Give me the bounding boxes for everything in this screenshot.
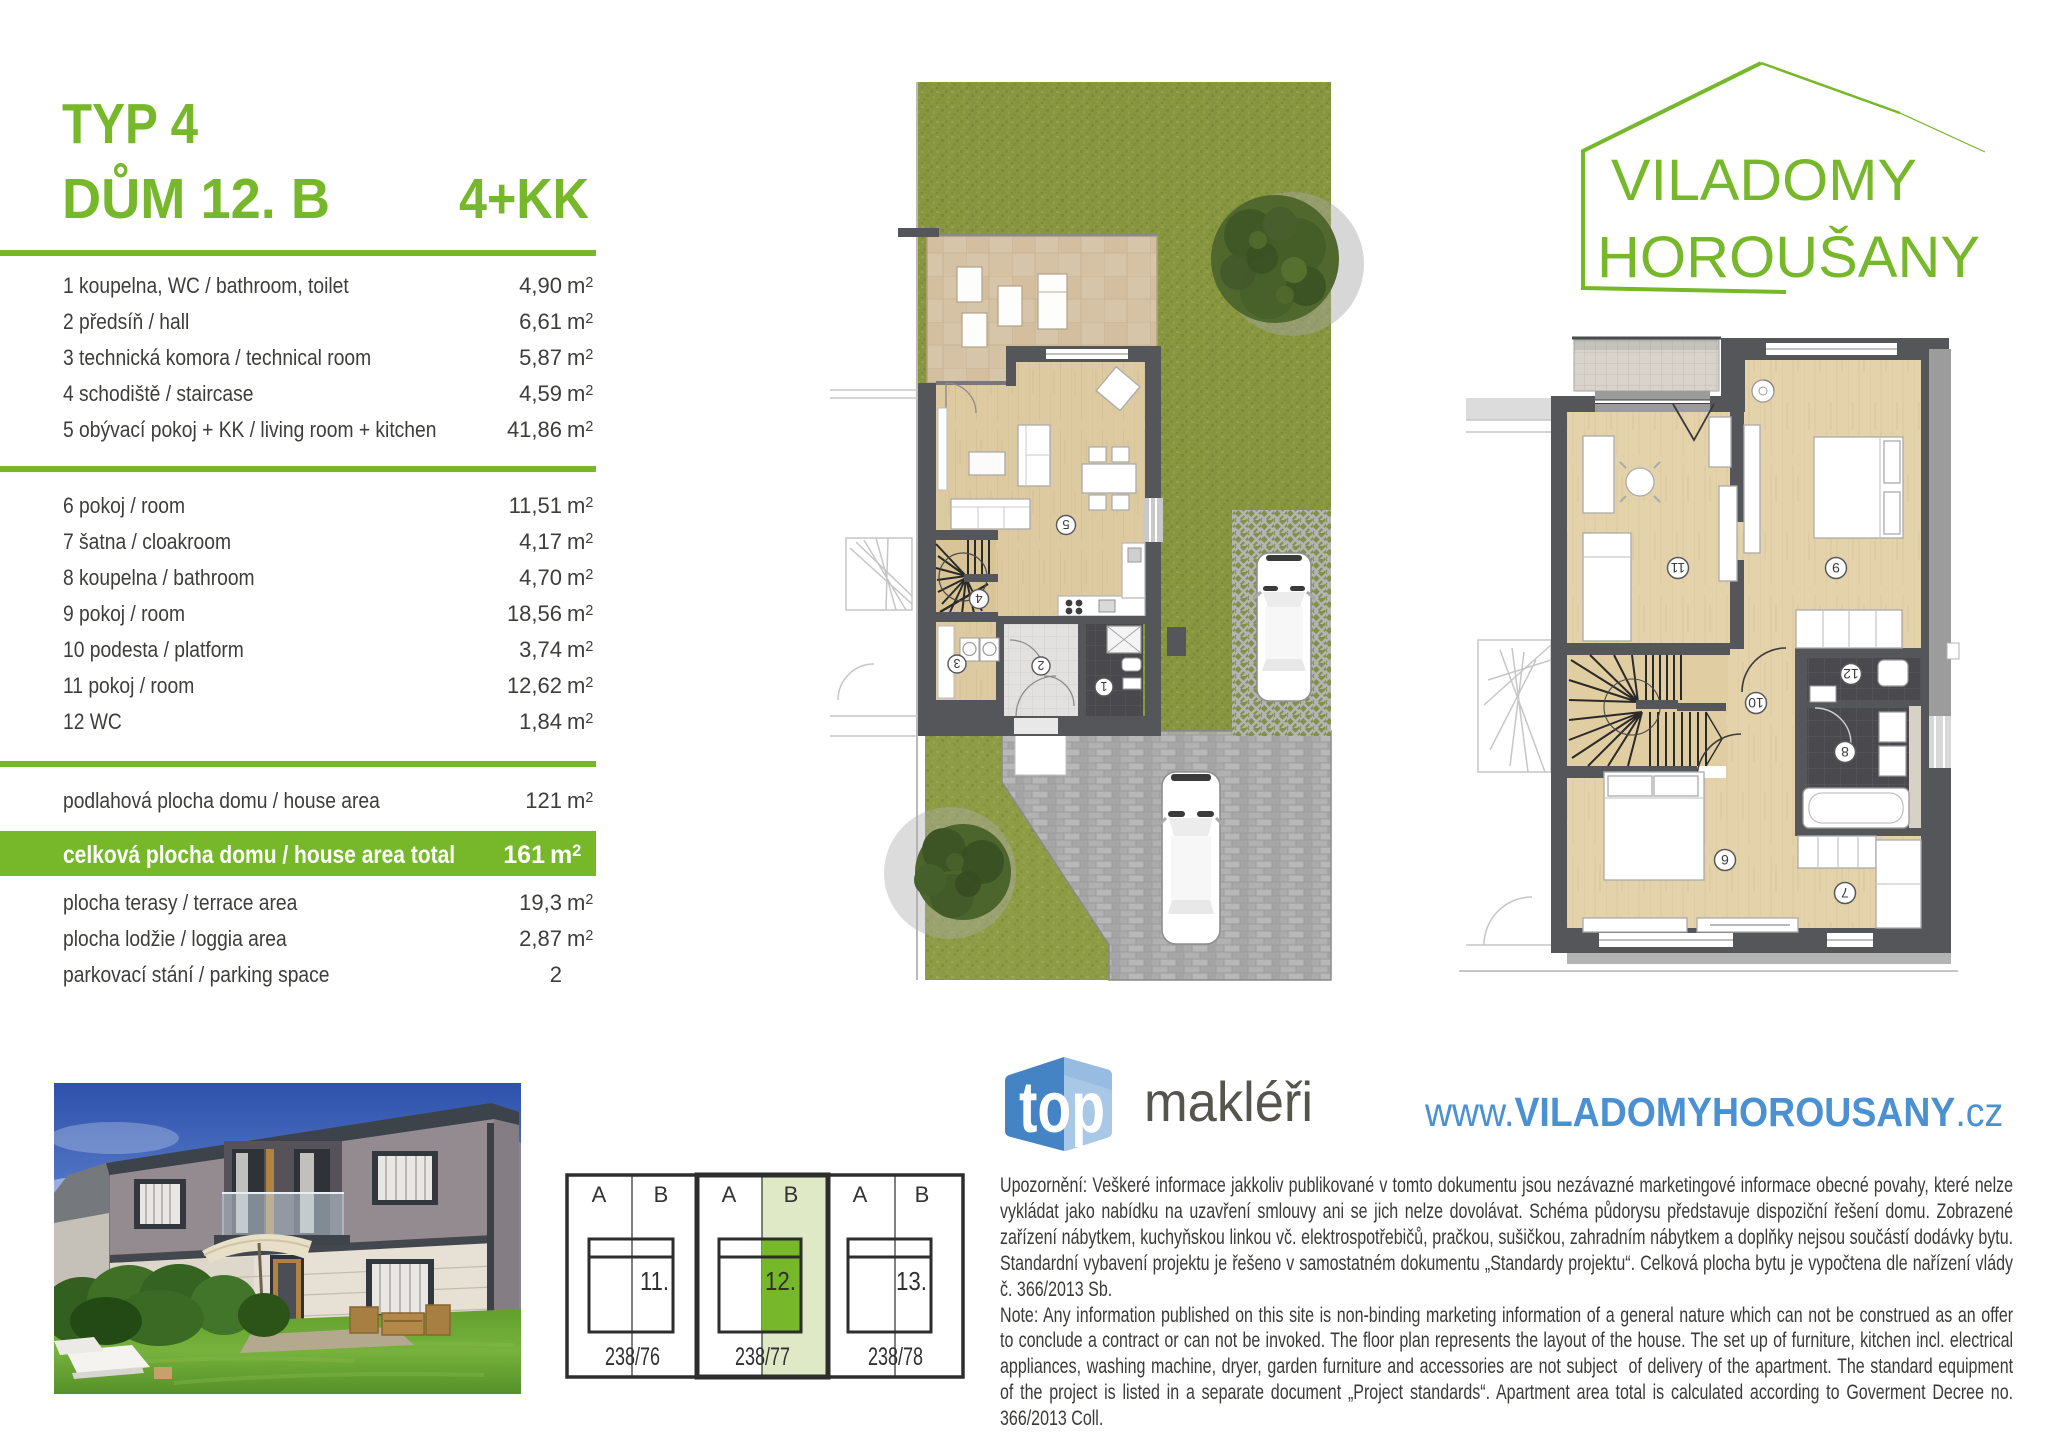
- svg-text:2: 2: [1037, 658, 1044, 672]
- svg-text:B: B: [915, 1182, 930, 1207]
- svg-text:1: 1: [1100, 679, 1107, 693]
- svg-text:6: 6: [1721, 852, 1729, 868]
- svg-text:3: 3: [953, 656, 960, 670]
- svg-text:top: top: [1019, 1068, 1105, 1148]
- svg-text:10: 10: [1748, 695, 1764, 711]
- svg-text:238/77: 238/77: [735, 1343, 790, 1371]
- svg-text:A: A: [853, 1182, 868, 1207]
- svg-text:DŮM 12. B: DŮM 12. B: [62, 162, 330, 231]
- svg-text:12: 12: [1843, 666, 1859, 682]
- svg-text:makléři: makléři: [1144, 1070, 1313, 1133]
- svg-text:5: 5: [1062, 517, 1069, 532]
- svg-text:9: 9: [1832, 560, 1840, 576]
- svg-text:A: A: [722, 1182, 737, 1207]
- svg-text:VILADOMY: VILADOMY: [1611, 148, 1917, 213]
- svg-text:8: 8: [1841, 744, 1849, 760]
- svg-text:11.: 11.: [640, 1266, 669, 1296]
- svg-text:A: A: [592, 1182, 607, 1207]
- svg-text:B: B: [784, 1182, 799, 1207]
- svg-text:13.: 13.: [896, 1266, 927, 1296]
- svg-text:TYP 4: TYP 4: [62, 92, 198, 156]
- svg-text:B: B: [654, 1182, 669, 1207]
- svg-text:4+KK: 4+KK: [459, 167, 589, 231]
- svg-text:238/76: 238/76: [605, 1343, 660, 1371]
- svg-text:HOROUŠANY: HOROUŠANY: [1597, 225, 1980, 290]
- svg-text:238/78: 238/78: [868, 1343, 923, 1371]
- svg-text:7: 7: [1841, 885, 1849, 901]
- svg-text:11: 11: [1671, 560, 1686, 576]
- svg-text:4: 4: [975, 591, 982, 606]
- svg-text:12.: 12.: [765, 1266, 796, 1296]
